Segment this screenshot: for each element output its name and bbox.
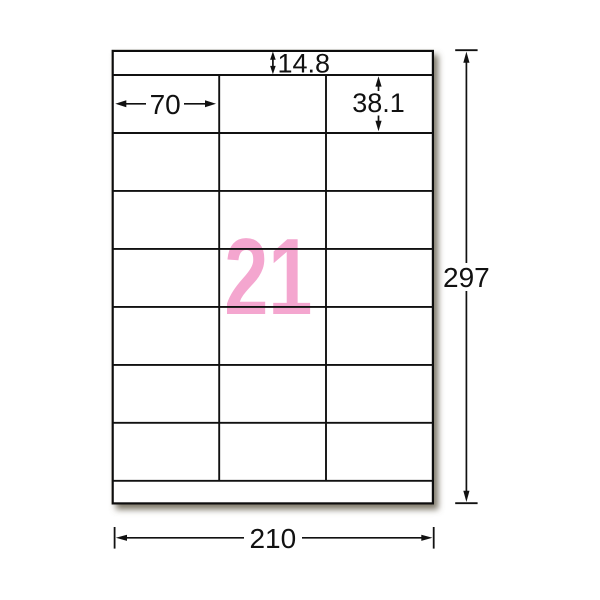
svg-text:38.1: 38.1 [352, 88, 405, 118]
svg-text:210: 210 [249, 523, 296, 554]
svg-text:21: 21 [224, 217, 312, 338]
svg-text:14.8: 14.8 [278, 48, 331, 78]
svg-text:70: 70 [150, 89, 181, 120]
svg-text:297: 297 [443, 262, 490, 293]
